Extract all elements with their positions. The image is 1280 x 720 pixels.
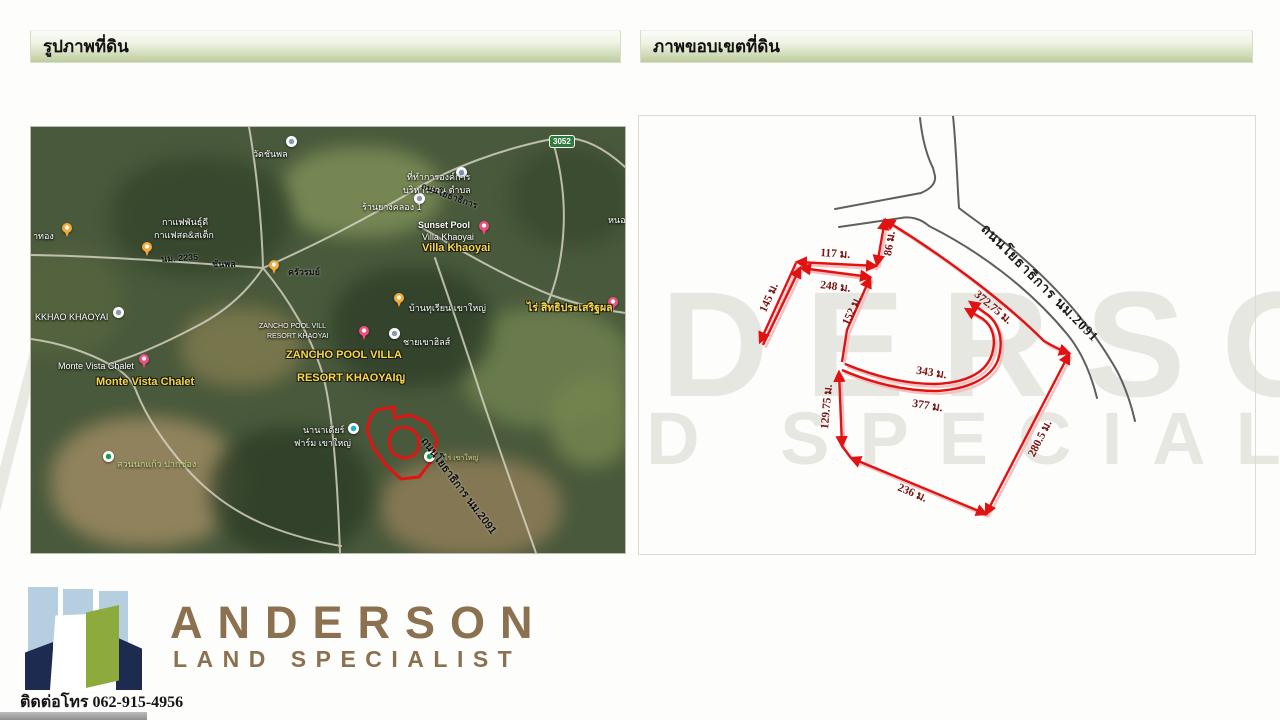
section-header-land-photo: รูปภาพที่ดิน — [30, 30, 621, 63]
map-pin-poi-icon — [389, 328, 400, 339]
satellite-map-image[interactable]: าทอง วัดชันพล กาแฟพันธุ์ดี กาแฟสด&สเต็ก … — [30, 126, 626, 554]
land-listing-page: ANDERSON LAND SPECIALIST รูปภาพที่ดิน ภา… — [0, 0, 1280, 720]
map-pin-yellow-icon — [394, 293, 404, 307]
section-header-land-boundary: ภาพขอบเขตที่ดิน — [640, 30, 1253, 63]
map-label: Monte Vista Chalet — [96, 376, 194, 388]
map-label: าทอง — [33, 229, 54, 243]
map-label: ที่ทำการองค์การ — [407, 170, 470, 184]
footer-divider — [0, 712, 147, 720]
map-road-path — [31, 127, 625, 553]
map-pin-yellow-icon — [269, 260, 279, 274]
measurement-label: 129.75 ม. — [819, 384, 835, 430]
brand-name: ANDERSON — [170, 597, 548, 649]
map-pin-poi-icon — [286, 136, 297, 147]
map-label: วัดชันพล — [253, 147, 288, 161]
map-label: ร้านยางคลอง 1 — [362, 200, 422, 214]
map-pin-cyan-icon — [348, 423, 359, 434]
map-label: หนองค — [608, 213, 626, 227]
measurement-label: 152 ม. — [840, 294, 864, 327]
map-label: สวนนกแก้ว ปากช่อง — [117, 457, 196, 471]
contact-phone-label: ติดต่อโทร — [20, 694, 89, 711]
map-label: KKHAO KHAOYAI — [35, 312, 108, 322]
land-boundary-image[interactable]: 86 ม. 117 ม. 248 ม. 145 ม. 152 ม. 343 ม.… — [638, 115, 1256, 555]
watermark-logo-icon — [0, 352, 30, 512]
measurement-label: 280.5 ม. — [1026, 418, 1055, 458]
map-label: กาแฟพันธุ์ดี — [162, 215, 208, 229]
contact-phone-number: 062-915-4956 — [93, 694, 184, 711]
logo-tower-green-icon — [86, 605, 119, 688]
route-shield: 3052 — [549, 135, 575, 148]
map-road-label: นม. 2235 — [161, 250, 199, 266]
measurement-label: 343 ม. — [915, 365, 947, 382]
map-pin-poi-icon — [113, 307, 124, 318]
map-label: ชายเขาฮิลส์ — [403, 335, 450, 349]
map-label: นานาเดียร์ — [303, 423, 344, 437]
map-pin-yellow-icon — [142, 242, 152, 256]
map-label: Sunset Pool — [418, 220, 470, 230]
map-label: กาแฟสด&สเต็ก — [154, 228, 214, 242]
map-label: Villa Khaoyai — [422, 232, 474, 242]
map-roads-layer — [31, 127, 625, 553]
measurement-label: 117 ม. — [820, 247, 851, 261]
map-label: ZANCHO POOL VILLA — [286, 349, 402, 361]
map-label: Villa Khaoyai — [422, 242, 490, 254]
map-label: RESORT KHAOYAIญ — [297, 368, 405, 386]
map-pin-park-icon — [103, 451, 114, 462]
map-pin-yellow-icon — [62, 223, 72, 237]
boundary-diagram: 86 ม. 117 ม. 248 ม. 145 ม. 152 ม. 343 ม.… — [639, 116, 1255, 554]
section-title: ภาพขอบเขตที่ดิน — [653, 33, 780, 60]
map-label: ฟาร์ม เขาใหญ่ — [294, 436, 351, 450]
measurement-label: 86 ม. — [882, 230, 898, 257]
map-label: ZANCHO POOL VILL — [259, 323, 326, 330]
map-pin-pink-icon — [359, 326, 369, 340]
map-label: ไร่ สิทธิประเสริฐผล — [527, 299, 613, 316]
map-label: บ้านทุเรียน เขาใหญ่ — [409, 301, 486, 315]
map-label: ครัวรมย์ — [288, 265, 320, 279]
map-label: Monte Vista Chalet — [58, 361, 134, 371]
measurement-label: 377 ม. — [911, 398, 943, 415]
map-label: RESORT KHAOYAI — [267, 333, 328, 340]
map-label: ชันพล — [212, 257, 236, 271]
section-title: รูปภาพที่ดิน — [43, 33, 129, 60]
map-pin-pink-icon — [139, 354, 149, 368]
map-pin-pink-icon — [479, 221, 489, 235]
measurement-label: 248 ม. — [819, 279, 851, 295]
logo-roof-icon — [116, 637, 142, 690]
brand-tagline: LAND SPECIALIST — [173, 646, 521, 673]
